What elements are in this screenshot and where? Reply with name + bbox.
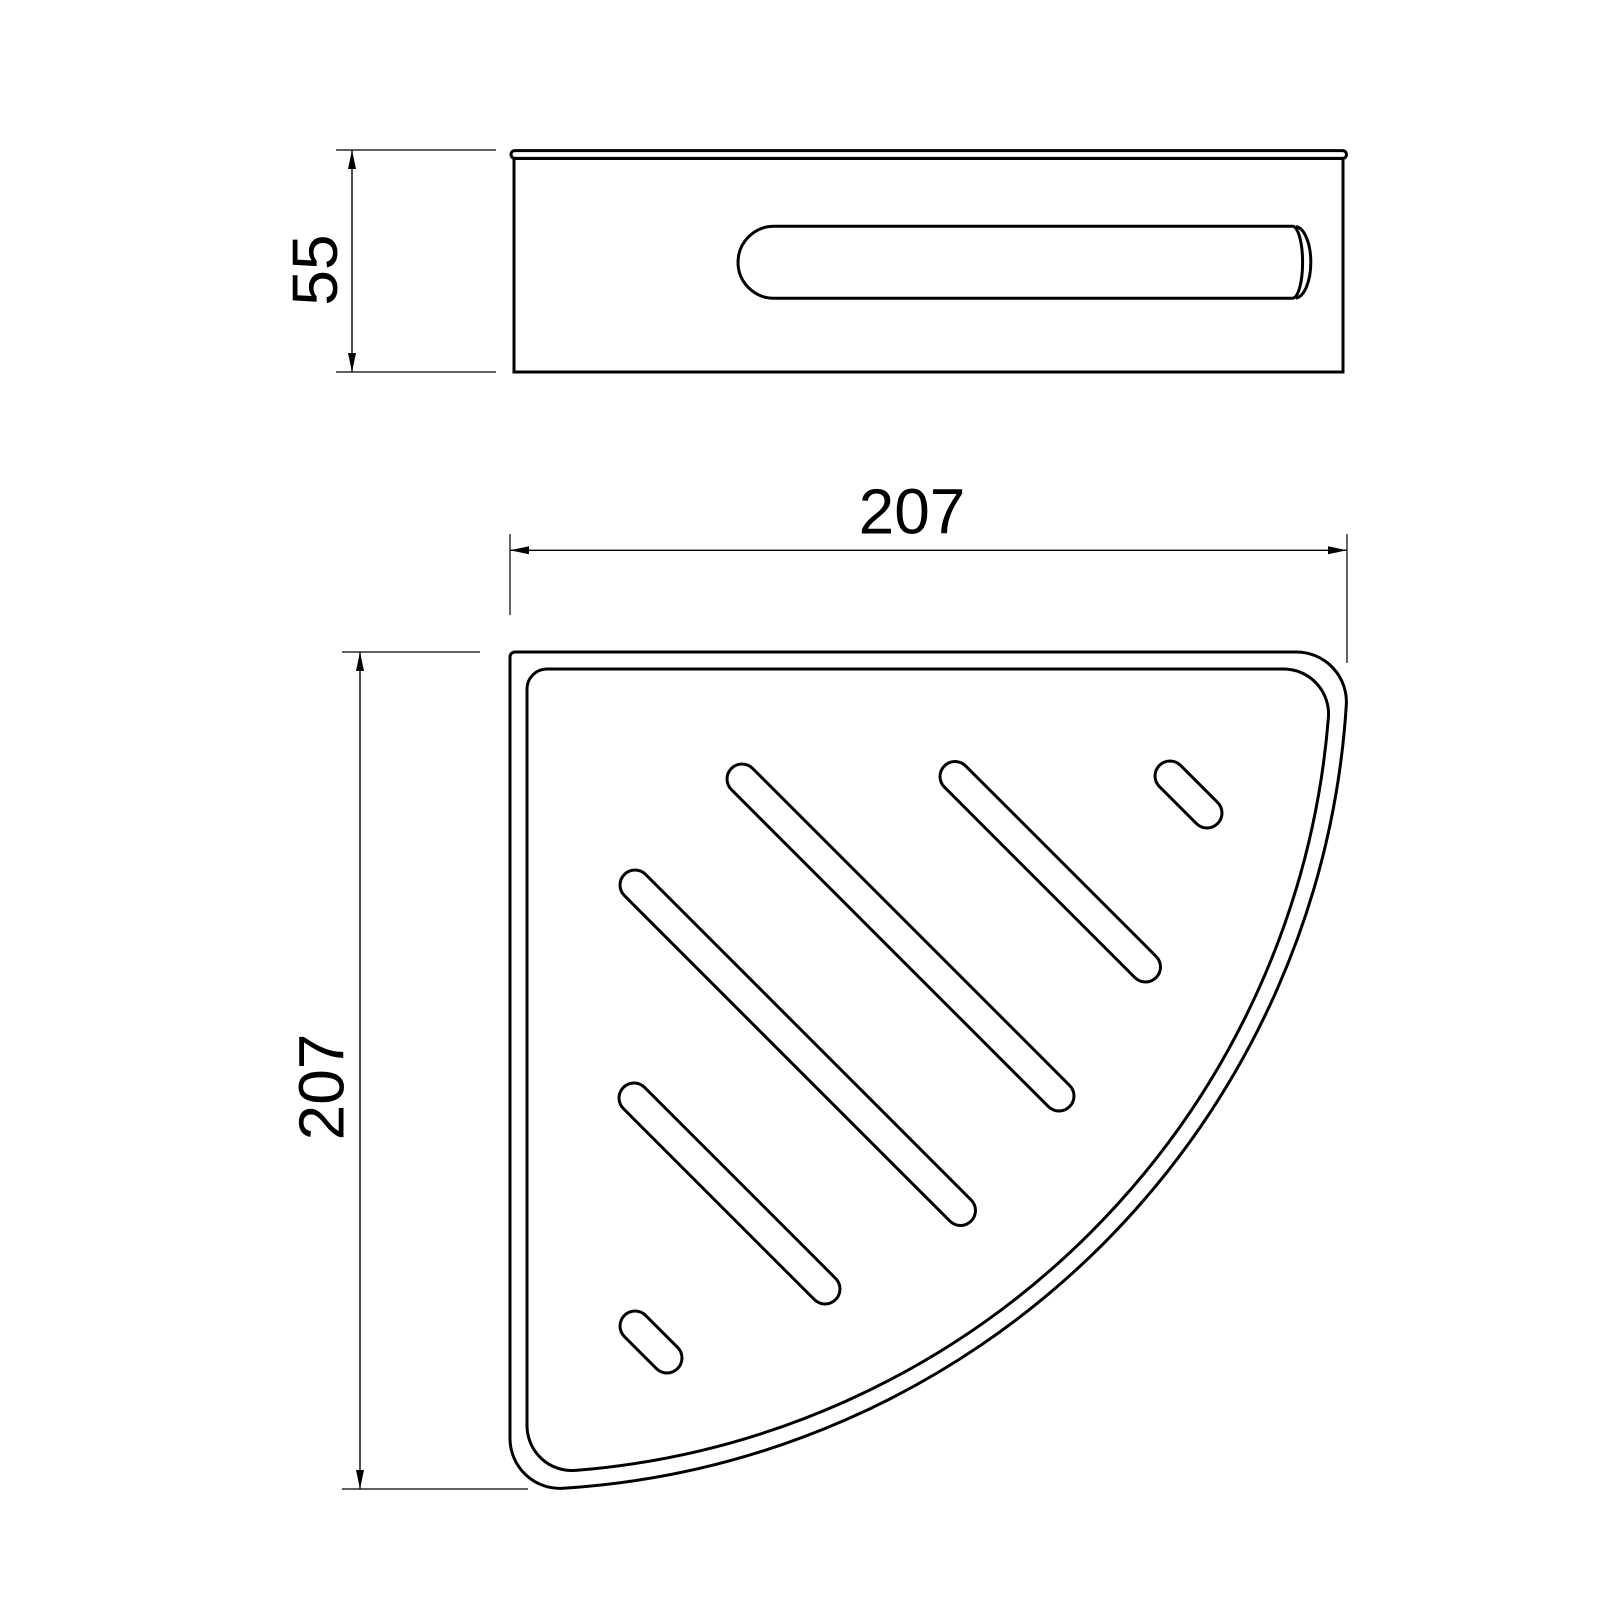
svg-text:207: 207: [859, 476, 966, 548]
svg-text:55: 55: [279, 234, 351, 305]
svg-text:207: 207: [286, 1034, 358, 1141]
